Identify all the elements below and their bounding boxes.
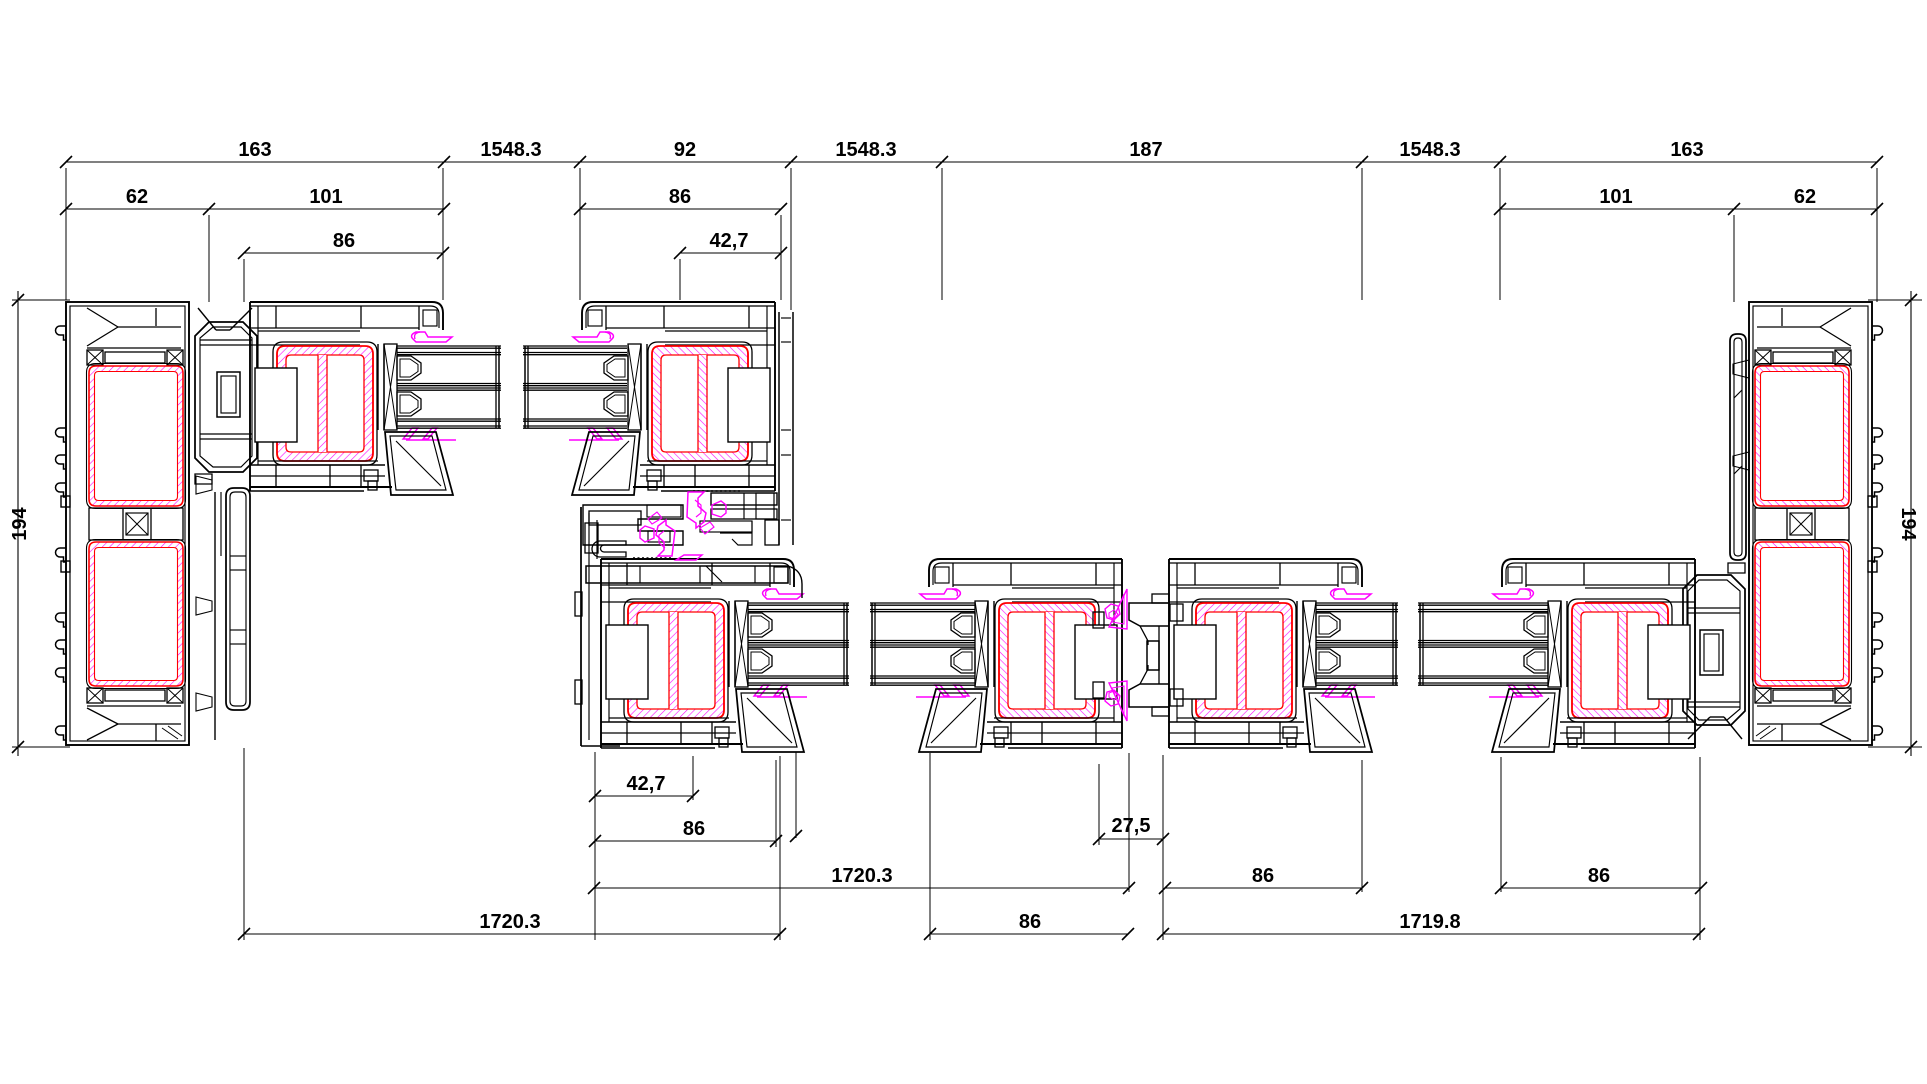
svg-text:1548.3: 1548.3: [835, 139, 896, 161]
svg-text:42,7: 42,7: [627, 773, 666, 795]
svg-text:194: 194: [9, 506, 31, 540]
svg-text:163: 163: [238, 139, 271, 161]
svg-text:62: 62: [1794, 186, 1816, 208]
svg-text:86: 86: [683, 818, 705, 840]
svg-text:101: 101: [309, 186, 342, 208]
svg-text:42,7: 42,7: [710, 230, 749, 252]
svg-text:27,5: 27,5: [1112, 815, 1151, 837]
svg-text:86: 86: [669, 186, 691, 208]
svg-text:1548.3: 1548.3: [480, 139, 541, 161]
svg-text:163: 163: [1670, 139, 1703, 161]
svg-text:92: 92: [674, 139, 696, 161]
svg-text:86: 86: [333, 230, 355, 252]
svg-text:101: 101: [1599, 186, 1632, 208]
svg-text:62: 62: [126, 186, 148, 208]
svg-text:86: 86: [1252, 865, 1274, 887]
svg-text:86: 86: [1588, 865, 1610, 887]
svg-text:194: 194: [1897, 507, 1919, 541]
svg-text:1720.3: 1720.3: [479, 911, 540, 933]
svg-text:86: 86: [1019, 911, 1041, 933]
svg-text:1548.3: 1548.3: [1399, 139, 1460, 161]
svg-text:1719.8: 1719.8: [1399, 911, 1460, 933]
svg-text:187: 187: [1129, 139, 1162, 161]
svg-text:1720.3: 1720.3: [831, 865, 892, 887]
